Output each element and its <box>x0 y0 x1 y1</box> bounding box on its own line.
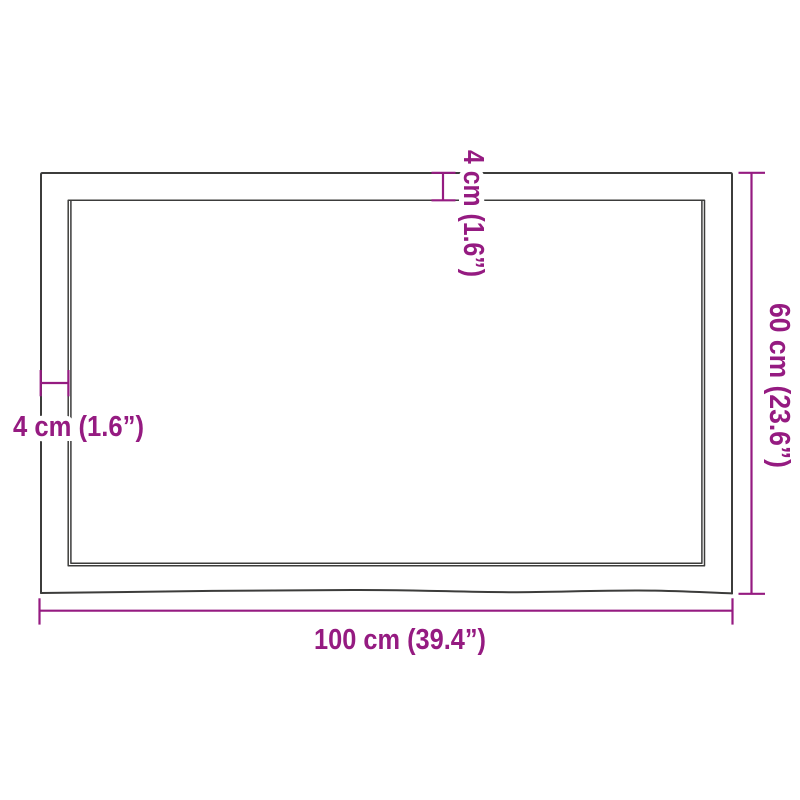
svg-text:4 cm (1.6”): 4 cm (1.6”) <box>13 411 144 443</box>
svg-text:60 cm (23.6”): 60 cm (23.6”) <box>763 303 795 468</box>
svg-text:100 cm (39.4”): 100 cm (39.4”) <box>314 624 486 656</box>
svg-text:4 cm (1.6”): 4 cm (1.6”) <box>457 150 489 277</box>
